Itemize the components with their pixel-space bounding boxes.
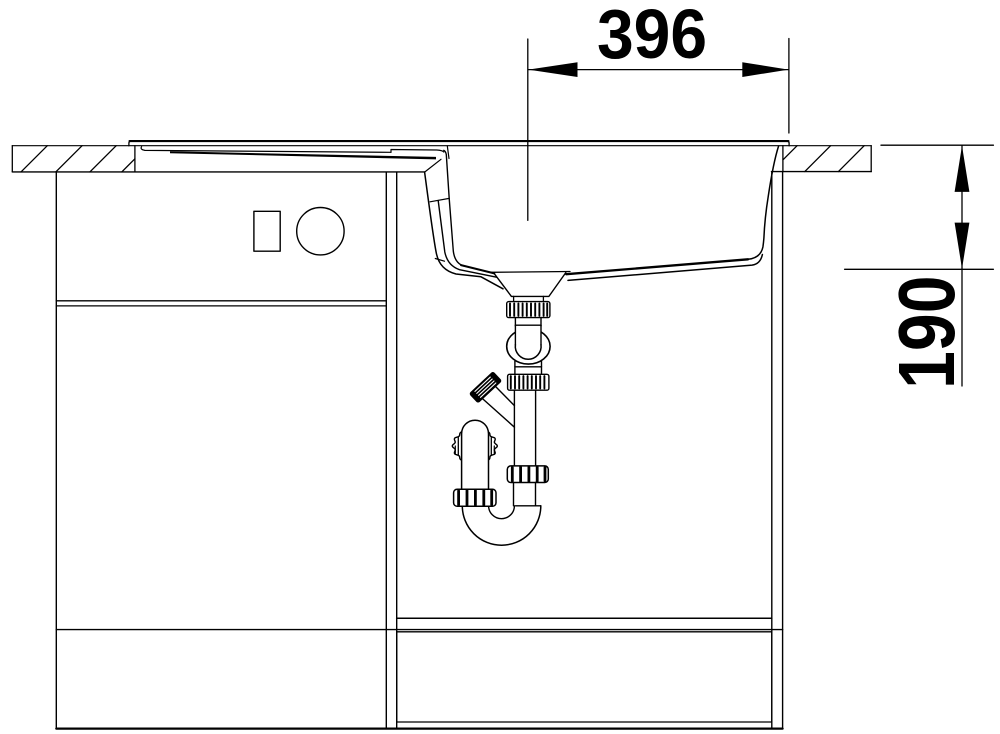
svg-text:396: 396 — [597, 0, 707, 73]
svg-text:190: 190 — [882, 275, 971, 388]
